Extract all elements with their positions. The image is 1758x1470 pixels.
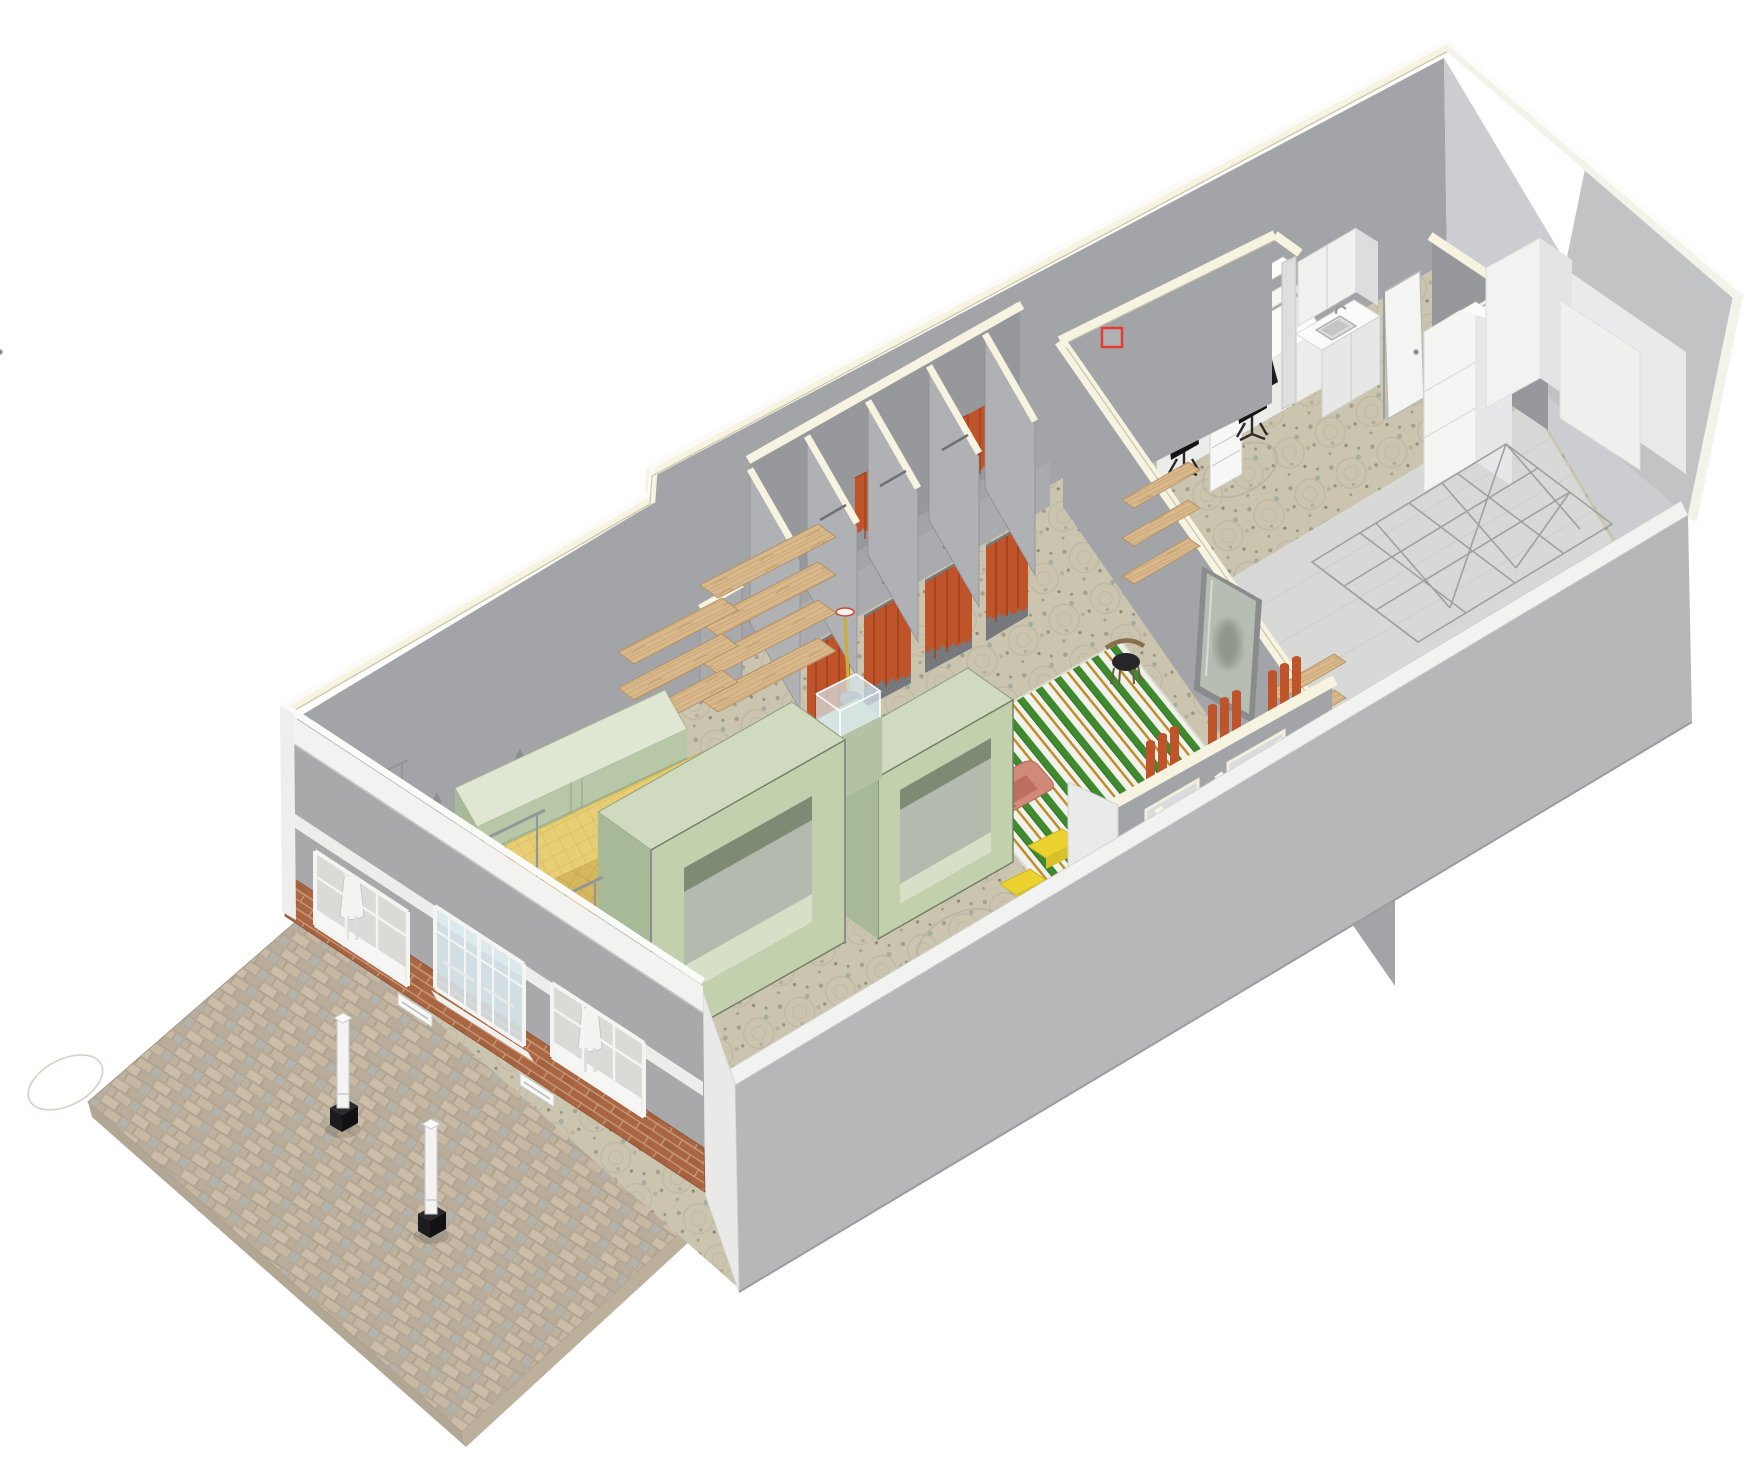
selection-marquee[interactable] [1102,328,1122,347]
axonometric-scene [0,0,1758,1470]
kitchen-partition [1282,256,1296,409]
viewport-3d [0,0,1758,1470]
facade-left-cap [280,706,296,920]
